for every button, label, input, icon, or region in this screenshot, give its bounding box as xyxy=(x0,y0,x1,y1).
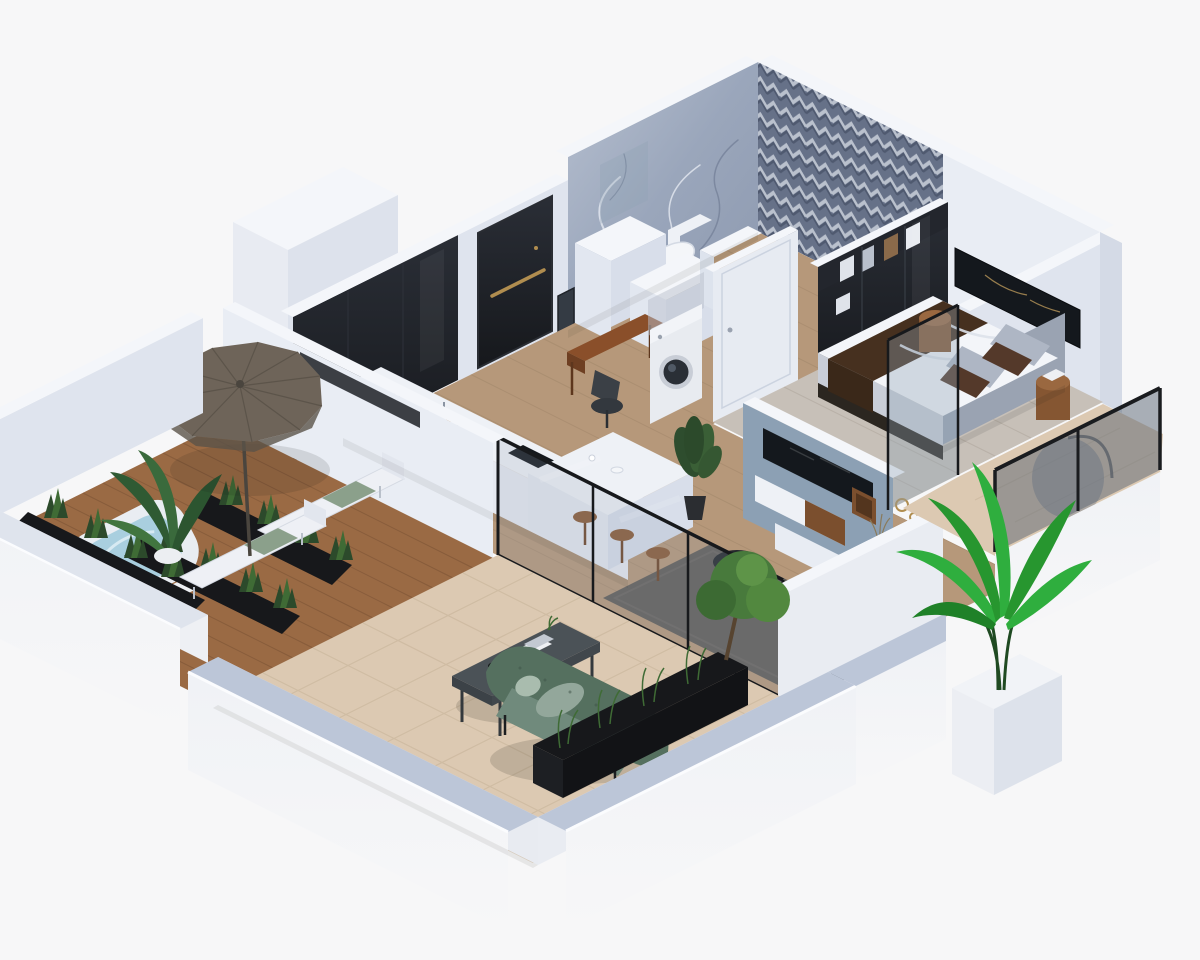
floor-plan-render xyxy=(0,0,1200,960)
door-peephole xyxy=(534,246,538,250)
bedroom-slider xyxy=(888,305,958,510)
banana-pot xyxy=(154,548,182,564)
washer-dial xyxy=(658,335,662,339)
isometric-scene xyxy=(0,0,1200,960)
wardrobe-reflection xyxy=(420,249,444,372)
island-plate xyxy=(611,467,623,473)
e-wall-end xyxy=(1100,232,1122,413)
bedroom-door-handle xyxy=(728,328,733,333)
washer-door xyxy=(664,360,689,385)
umbrella-finial xyxy=(236,380,244,388)
